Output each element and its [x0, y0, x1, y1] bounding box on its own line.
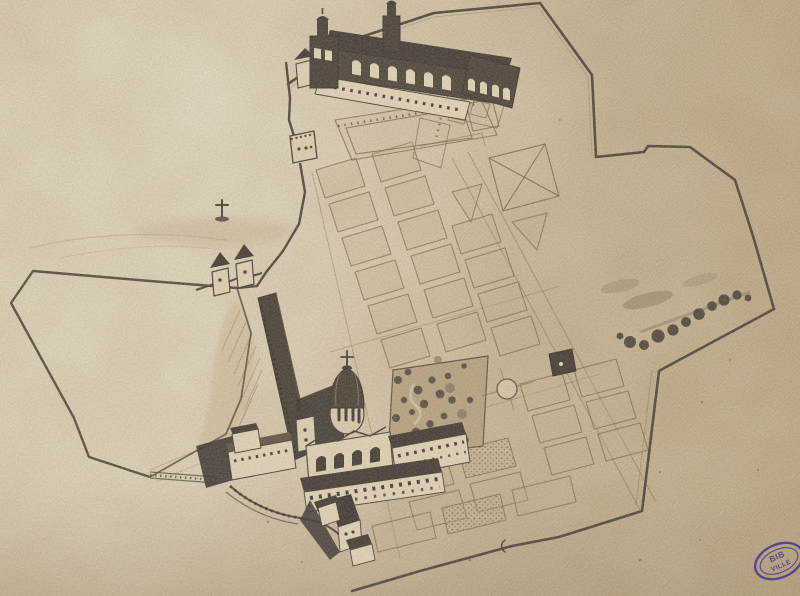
scanned-plan-page: BIB VILLE: [0, 0, 800, 596]
paper-grain-light: [0, 0, 800, 596]
map-drawing: BIB VILLE: [0, 0, 800, 596]
